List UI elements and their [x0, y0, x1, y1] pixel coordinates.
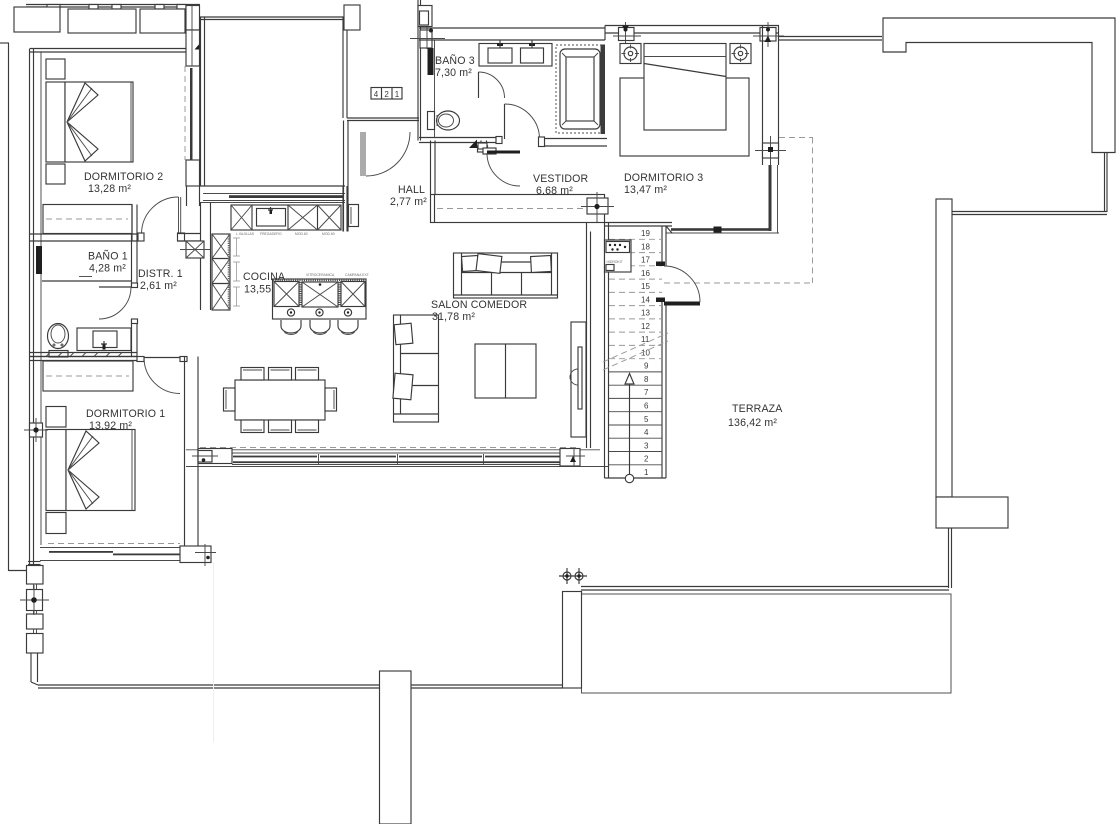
svg-text:18: 18 — [641, 242, 650, 251]
svg-text:6: 6 — [644, 402, 649, 411]
svg-text:13,55: 13,55 — [244, 284, 271, 296]
svg-text:4,28 m²: 4,28 m² — [89, 263, 126, 275]
svg-text:13,47 m²: 13,47 m² — [624, 184, 667, 196]
svg-text:17: 17 — [641, 256, 650, 265]
svg-text:1: 1 — [395, 90, 400, 99]
svg-text:HIDROKIT: HIDROKIT — [607, 260, 623, 264]
svg-text:11: 11 — [641, 335, 650, 344]
svg-text:8: 8 — [644, 375, 649, 384]
svg-text:14: 14 — [641, 295, 650, 304]
svg-text:9: 9 — [644, 362, 649, 371]
svg-text:136,42 m²: 136,42 m² — [728, 417, 777, 429]
svg-text:DORMITORIO 1: DORMITORIO 1 — [86, 408, 165, 420]
svg-text:7,30 m²: 7,30 m² — [435, 67, 472, 79]
svg-text:BAÑO 1: BAÑO 1 — [88, 250, 128, 263]
svg-text:MOD.60: MOD.60 — [322, 232, 335, 236]
svg-text:2,61 m²: 2,61 m² — [140, 280, 177, 292]
svg-text:1: 1 — [644, 468, 649, 477]
svg-text:2: 2 — [384, 90, 389, 99]
svg-text:CAMPANA EXT.: CAMPANA EXT. — [345, 273, 369, 277]
svg-text:DORMITORIO 2: DORMITORIO 2 — [84, 171, 163, 183]
svg-text:VESTIDOR: VESTIDOR — [533, 173, 589, 185]
svg-text:DISTR. 1: DISTR. 1 — [138, 268, 183, 280]
svg-text:HALL: HALL — [398, 184, 425, 196]
svg-text:3: 3 — [644, 441, 649, 450]
svg-text:TERRAZA: TERRAZA — [732, 403, 783, 415]
svg-text:4: 4 — [374, 90, 379, 99]
svg-text:FREGADERO: FREGADERO — [260, 232, 282, 236]
svg-text:SALON COMEDOR: SALON COMEDOR — [431, 299, 527, 311]
svg-text:2: 2 — [644, 455, 649, 464]
svg-text:13: 13 — [641, 309, 650, 318]
svg-text:5: 5 — [644, 415, 649, 424]
svg-text:4: 4 — [644, 428, 649, 437]
svg-text:L.VAJILLAS: L.VAJILLAS — [236, 232, 255, 236]
svg-text:VITROCERAMICA: VITROCERAMICA — [306, 273, 335, 277]
svg-text:MOD.60: MOD.60 — [295, 232, 308, 236]
svg-text:7: 7 — [644, 388, 649, 397]
svg-text:COCINA: COCINA — [243, 271, 286, 283]
svg-text:19: 19 — [641, 229, 650, 238]
svg-text:13,28 m²: 13,28 m² — [88, 183, 131, 195]
svg-text:12: 12 — [641, 322, 650, 331]
svg-text:BAÑO 3: BAÑO 3 — [435, 54, 475, 67]
svg-text:2,77 m²: 2,77 m² — [390, 196, 427, 208]
svg-text:15: 15 — [641, 282, 650, 291]
svg-text:DORMITORIO 3: DORMITORIO 3 — [624, 172, 703, 184]
svg-text:31,78 m²: 31,78 m² — [432, 311, 475, 323]
svg-text:16: 16 — [641, 269, 650, 278]
